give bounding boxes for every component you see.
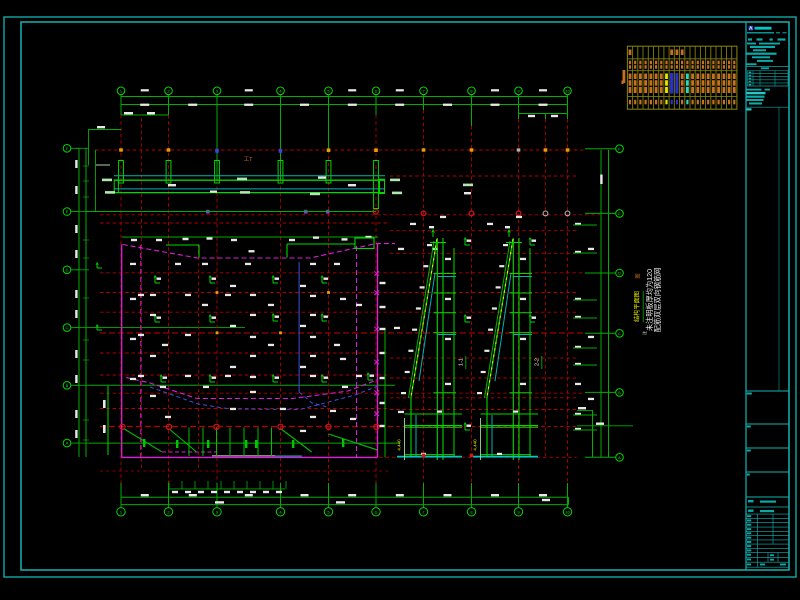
svg-text:10: 10	[565, 510, 570, 515]
svg-text:A: A	[618, 455, 621, 460]
svg-text:D: D	[66, 267, 69, 272]
svg-text:注: 注	[641, 331, 647, 335]
svg-text:C: C	[66, 325, 69, 330]
svg-text:图: 图	[636, 273, 642, 278]
svg-text:C: C	[618, 331, 621, 336]
svg-text:配筋双层双向钢筋网: 配筋双层双向钢筋网	[653, 268, 662, 333]
svg-text:1-1: 1-1	[458, 358, 464, 366]
svg-text:4.440: 4.440	[397, 439, 402, 451]
svg-text:E: E	[66, 209, 69, 214]
svg-text:工T: 工T	[244, 156, 254, 163]
svg-text:2-2: 2-2	[534, 358, 540, 366]
svg-text:B: B	[618, 390, 621, 395]
svg-text:结构平面图: 结构平面图	[633, 291, 641, 322]
svg-text:B: B	[66, 383, 69, 388]
svg-text:E: E	[618, 211, 621, 216]
svg-text:4.440: 4.440	[473, 439, 478, 451]
svg-text:D: D	[618, 271, 621, 276]
svg-text:A: A	[66, 441, 69, 446]
svg-text:10: 10	[565, 88, 570, 93]
